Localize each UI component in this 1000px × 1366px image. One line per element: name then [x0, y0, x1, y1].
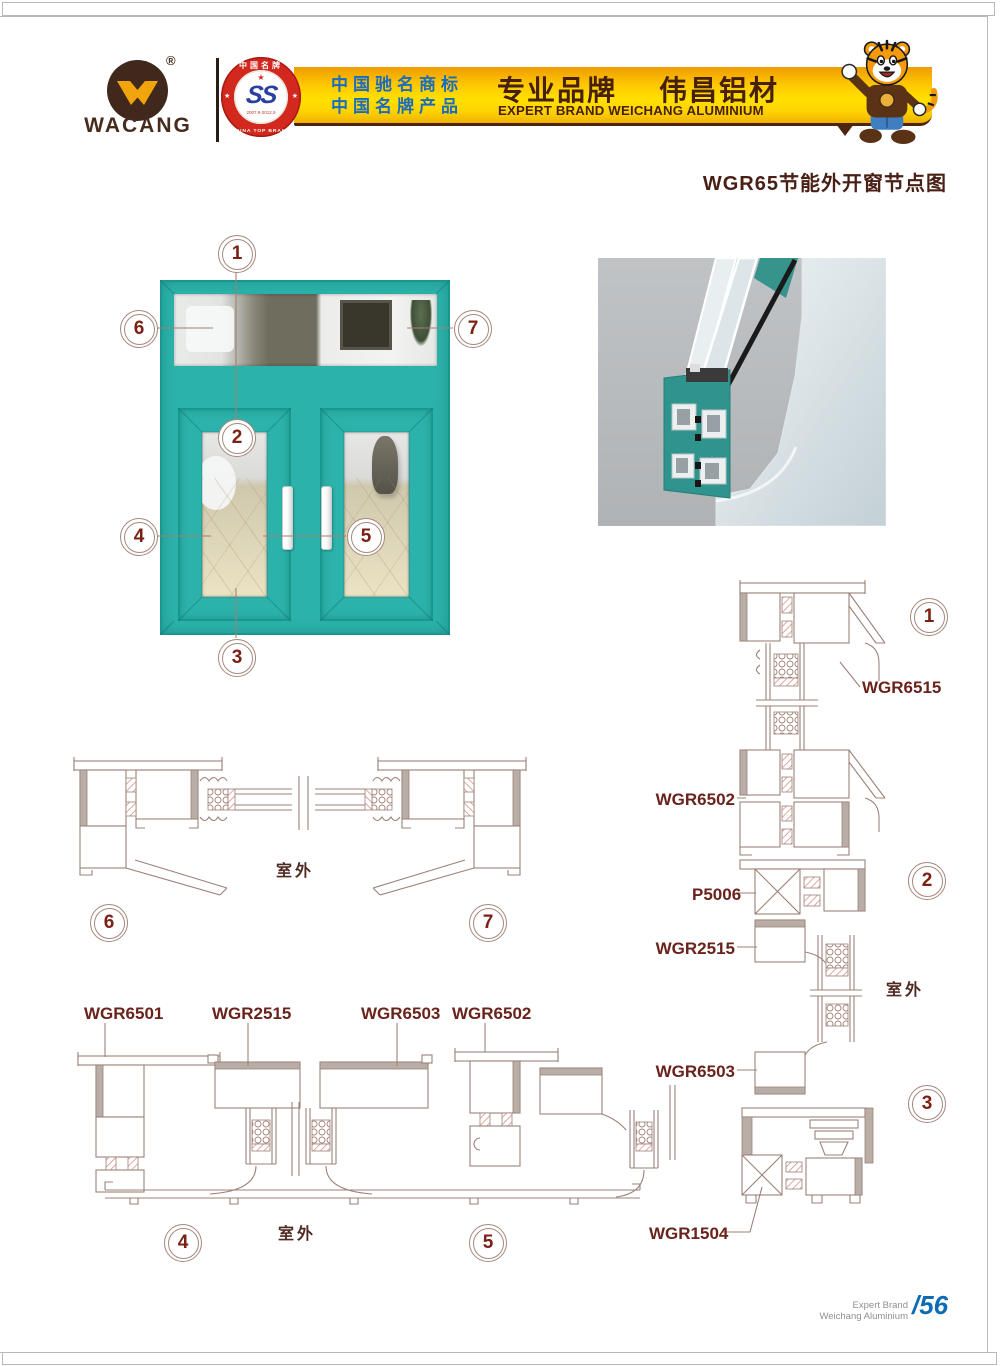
- label-wgr2515-v: WGR2515: [648, 939, 735, 959]
- badge-star-left-icon: ★: [224, 92, 230, 100]
- section-drawing-vertical: [722, 580, 897, 1225]
- footer-brand-text: Expert Brand Weichang Aluminium: [700, 1300, 908, 1322]
- label-wgr6502-v: WGR6502: [650, 790, 735, 810]
- section-drawing-casement: [70, 1040, 685, 1215]
- claim-line2: 中国名牌产品: [300, 96, 494, 118]
- banner-title-left: 专业品牌: [497, 75, 617, 106]
- label-wgr6501: WGR6501: [84, 1004, 163, 1024]
- tiger-mascot-icon: [838, 38, 940, 144]
- label-wgr6502-h: WGR6502: [452, 1004, 531, 1024]
- catalog-page: ® WACANG 中国名牌 ★ ★ ★ SS 2007.9-2012.9 CHI…: [0, 0, 1000, 1366]
- w-glyph-icon: [107, 60, 168, 121]
- label-wgr2515-h: WGR2515: [212, 1004, 291, 1024]
- label-wgr6515: WGR6515: [862, 678, 941, 698]
- badge-years: 2007.9-2012.9: [234, 110, 288, 115]
- wacang-logo-icon: [107, 60, 168, 121]
- badge-star-right-icon: ★: [292, 92, 298, 100]
- label-wgr1504: WGR1504: [649, 1224, 721, 1244]
- label-p5006: P5006: [692, 885, 735, 905]
- badge-inner-circle: ★ SS 2007.9-2012.9: [234, 70, 288, 124]
- top-trim-strip: [2, 2, 995, 16]
- claim-line1: 中国驰名商标: [300, 74, 494, 96]
- page-title: WGR65节能外开窗节点图: [595, 167, 947, 196]
- callout-1: 1: [218, 235, 256, 273]
- outdoor-label-b: 室外: [278, 1220, 316, 1244]
- banner-title-right: 伟昌铝材: [659, 75, 779, 106]
- page-number: /56: [912, 1290, 948, 1321]
- label-wgr6503-v: WGR6503: [648, 1062, 735, 1082]
- footer-line1: Expert Brand: [700, 1300, 908, 1311]
- header-divider: [216, 58, 219, 142]
- callout-2: 2: [218, 419, 256, 457]
- section-drawing-fixed: [70, 748, 530, 906]
- outdoor-label-c: 室外: [886, 976, 924, 1000]
- section-callout-4: 4: [164, 1224, 202, 1262]
- callout-6: 6: [120, 310, 158, 348]
- bottom-trim-strip: [2, 1352, 997, 1365]
- section-callout-3: 3: [908, 1085, 946, 1123]
- section-callout-5: 5: [469, 1224, 507, 1262]
- callout-5: 5: [347, 518, 385, 556]
- window-miter-lines: [120, 230, 512, 690]
- profile-3d-render: [598, 258, 886, 526]
- badge-monogram: SS: [232, 83, 290, 108]
- section-callout-2: 2: [908, 862, 946, 900]
- footer-line2: Weichang Aluminium: [700, 1311, 908, 1322]
- callout-4: 4: [120, 518, 158, 556]
- section-callout-1: 1: [910, 598, 948, 636]
- window-illustration: [120, 230, 512, 690]
- section-callout-6: 6: [90, 904, 128, 942]
- outdoor-label-a: 室外: [276, 857, 314, 881]
- badge-arc-bottom: CHINA TOP BRAND: [225, 128, 297, 133]
- callout-7: 7: [454, 310, 492, 348]
- banner-subtitle: EXPERT BRAND WEICHANG ALUMINIUM: [498, 103, 764, 118]
- china-top-brand-badge: 中国名牌 ★ ★ ★ SS 2007.9-2012.9 CHINA TOP BR…: [221, 57, 301, 137]
- callout-3: 3: [218, 639, 256, 677]
- brand-claims: 中国驰名商标 中国名牌产品: [300, 74, 494, 118]
- brand-wordmark: WACANG: [62, 114, 214, 138]
- registered-mark: ®: [166, 53, 176, 68]
- section-callout-7: 7: [469, 904, 507, 942]
- label-wgr6503-h: WGR6503: [361, 1004, 440, 1024]
